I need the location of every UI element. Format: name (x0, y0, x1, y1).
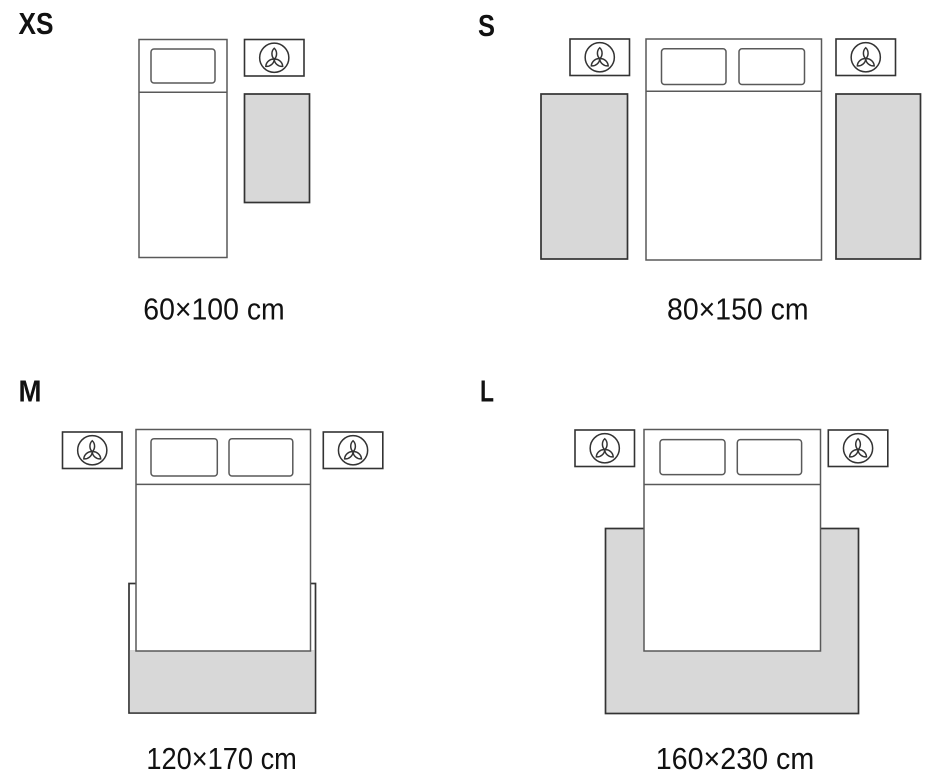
svg-text:M: M (19, 373, 42, 408)
svg-text:60×100 cm: 60×100 cm (143, 291, 285, 326)
svg-text:120×170 cm: 120×170 cm (146, 741, 297, 776)
svg-text:L: L (480, 373, 494, 408)
svg-text:S: S (478, 8, 495, 43)
svg-text:80×150 cm: 80×150 cm (667, 291, 809, 326)
svg-text:XS: XS (19, 6, 54, 41)
svg-text:160×230 cm: 160×230 cm (656, 741, 815, 776)
